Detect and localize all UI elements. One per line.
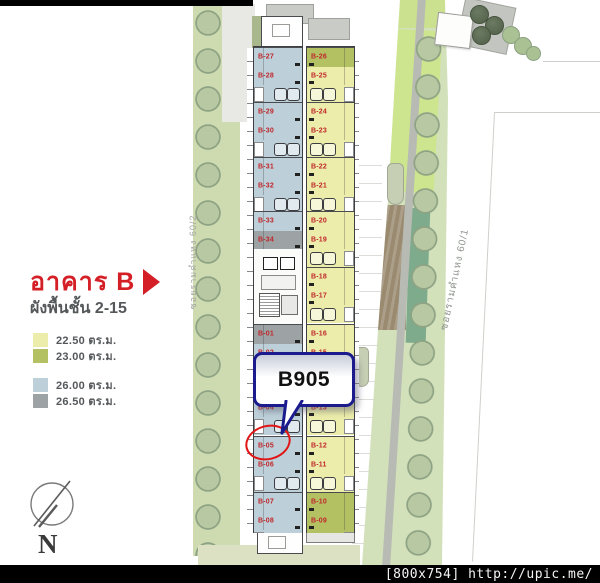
bath-core — [287, 477, 300, 490]
elevator-icon — [263, 257, 278, 270]
door-mark — [295, 227, 300, 230]
balcony-bath-strip — [307, 140, 354, 158]
terrace-furniture — [272, 24, 290, 37]
door-mark — [309, 173, 314, 176]
unit-B-20: B-20 — [307, 212, 354, 232]
door-mark — [309, 63, 314, 66]
door-mark — [295, 63, 300, 66]
unit-B-28: B-28 — [254, 67, 302, 87]
bath-core — [310, 252, 323, 265]
unit-label: B-09 — [311, 517, 327, 524]
unit-label: B-23 — [311, 127, 327, 134]
legend-swatch-yellow — [33, 333, 48, 347]
balcony-notch — [344, 142, 354, 157]
door-mark — [295, 452, 300, 455]
watermark-text: [800x754] http://upic.me/ — [385, 567, 600, 582]
legend-label: 26.50 ตร.ม. — [56, 392, 116, 410]
legend-swatch-olive — [33, 349, 48, 363]
bath-core — [287, 143, 300, 156]
balcony-notch — [344, 476, 354, 491]
bath-core — [274, 533, 287, 534]
letterbox-bottom: [800x754] http://upic.me/ — [0, 565, 600, 583]
balcony-bath-strip — [307, 305, 354, 323]
door-mark — [309, 118, 314, 121]
bath-core — [274, 88, 287, 101]
bath-core — [287, 88, 300, 101]
balcony-bath-strip — [254, 85, 302, 103]
unit-B-19: B-19 — [307, 231, 354, 251]
arrow-right-icon — [143, 269, 160, 295]
planter-island — [387, 163, 404, 205]
balcony-bath-strip — [307, 474, 354, 492]
unit-section: B-27B-28 — [254, 47, 302, 103]
unit-B-16: B-16 — [307, 325, 354, 345]
unit-label: B-20 — [311, 218, 327, 225]
balcony-notch — [254, 197, 264, 212]
door-mark — [295, 508, 300, 511]
tree-icon — [526, 46, 541, 61]
bath-core — [274, 477, 287, 490]
unit-label: B-26 — [311, 54, 327, 61]
unit-label: B-24 — [311, 109, 327, 116]
unit-B-23: B-23 — [307, 122, 354, 142]
bath-core — [274, 198, 287, 211]
unit-B-34: B-34 — [254, 231, 302, 250]
unit-label: B-32 — [258, 182, 274, 189]
stairs-icon — [259, 293, 280, 317]
unit-section: B-18B-17 — [307, 267, 354, 323]
unit-label: B-29 — [258, 109, 274, 116]
balcony-notch — [344, 197, 354, 212]
balcony-notch — [254, 87, 264, 102]
door-mark — [295, 191, 300, 194]
balcony-notch — [344, 251, 354, 266]
balcony-bath-strip — [254, 474, 302, 492]
balcony-bath-strip — [307, 249, 354, 267]
bath-core — [310, 477, 323, 490]
unit-label: B-25 — [311, 72, 327, 79]
legend-item: 26.50 ตร.ม. — [33, 392, 116, 410]
unit-label: B-30 — [258, 127, 274, 134]
unit-section: B-20B-19 — [307, 211, 354, 267]
unit-section: B-31B-32 — [254, 157, 302, 213]
unit-label: B-01 — [258, 331, 274, 338]
door-mark — [295, 173, 300, 176]
terrace-furniture — [268, 536, 286, 549]
bath-core — [310, 198, 323, 211]
balcony-notch — [344, 307, 354, 322]
terrace-top — [261, 16, 303, 48]
balcony-notch — [344, 87, 354, 102]
bath-core — [323, 308, 336, 321]
property-line — [495, 112, 600, 113]
unit-B-32: B-32 — [254, 177, 302, 197]
compass-n-label: N — [38, 529, 58, 559]
door-mark — [309, 340, 314, 343]
unit-B-17: B-17 — [307, 287, 354, 307]
legend-item: 23.00 ตร.ม. — [33, 347, 116, 365]
unit-B-01: B-01 — [254, 325, 302, 345]
unit-label: B-18 — [311, 274, 327, 281]
bath-core — [274, 143, 287, 156]
unit-section: B-10B-09 — [307, 492, 354, 533]
balcony-bath-strip — [307, 85, 354, 103]
balcony-bath-strip — [254, 530, 302, 533]
unit-label: B-21 — [311, 182, 327, 189]
unit-B-11: B-11 — [307, 456, 354, 476]
door-mark — [309, 283, 314, 286]
service-room — [281, 295, 298, 315]
door-mark — [295, 340, 300, 343]
unit-B-29: B-29 — [254, 103, 302, 123]
legend-swatch-gray — [33, 394, 48, 408]
door-mark — [295, 118, 300, 121]
bath-core — [323, 420, 336, 433]
callout-bubble: B905 — [253, 352, 355, 407]
bath-core — [323, 88, 336, 101]
unit-B-12: B-12 — [307, 437, 354, 457]
door-mark — [309, 81, 314, 84]
floor-range-subtitle: ผังพื้นชั้น 2-15 — [30, 296, 127, 321]
door-mark — [295, 526, 300, 529]
terrace-bottom — [257, 531, 303, 554]
unit-label: B-27 — [258, 54, 274, 61]
legend-swatch-blue — [33, 378, 48, 392]
unit-label: B-12 — [311, 443, 327, 450]
door-mark — [309, 508, 314, 511]
unit-label: B-22 — [311, 164, 327, 171]
road-label-left: ซอยรามคำแหง 60/2 — [186, 187, 200, 337]
unit-B-30: B-30 — [254, 122, 302, 142]
roof-block — [308, 18, 350, 40]
unit-label: B-17 — [311, 292, 327, 299]
unit-B-21: B-21 — [307, 177, 354, 197]
callout-tail — [272, 400, 312, 438]
door-mark — [309, 301, 314, 304]
balcony-notch — [254, 142, 264, 157]
unit-B-31: B-31 — [254, 158, 302, 178]
unit-label: B-08 — [258, 517, 274, 524]
door-mark — [309, 245, 314, 248]
elevator-icon — [280, 257, 295, 270]
bath-core — [310, 533, 323, 534]
letterbox-top — [0, 0, 253, 6]
compass-icon: N — [24, 477, 82, 559]
door-mark — [309, 526, 314, 529]
balcony-notch — [254, 532, 264, 533]
unit-label: B-16 — [311, 331, 327, 338]
unit-section: B-22B-21 — [307, 157, 354, 213]
building-wing-right: B-26B-25B-24B-23B-22B-21B-20B-19B-18B-17… — [306, 46, 355, 533]
unit-section: B-12B-11 — [307, 436, 354, 492]
unit-label: B-31 — [258, 164, 274, 171]
bath-core — [287, 533, 300, 534]
unit-B-24: B-24 — [307, 103, 354, 123]
tree-icon — [472, 26, 491, 45]
unit-section: B-29B-30 — [254, 102, 302, 158]
door-mark — [295, 470, 300, 473]
property-line — [543, 61, 600, 62]
unit-B-18: B-18 — [307, 268, 354, 288]
unit-label: B-33 — [258, 218, 274, 225]
unit-label: B-06 — [258, 461, 274, 468]
unit-label: B-34 — [258, 236, 274, 243]
bath-core — [323, 252, 336, 265]
unit-B-33: B-33 — [254, 212, 302, 232]
unit-B-07: B-07 — [254, 493, 302, 513]
floorplan-page: ซอยรามคำแหง 60/2 ซอยรามคำแหง 60/1 B-27B-… — [0, 0, 600, 583]
balcony-bath-strip — [254, 140, 302, 158]
property-line — [472, 112, 495, 562]
bath-core — [310, 88, 323, 101]
bath-core — [323, 198, 336, 211]
unit-label: B-28 — [258, 72, 274, 79]
balcony-notch — [344, 532, 354, 533]
unit-label: B-07 — [258, 499, 274, 506]
unit-section: B-07B-08 — [254, 492, 302, 533]
door-mark — [309, 470, 314, 473]
balcony-notch — [254, 476, 264, 491]
unit-B-26: B-26 — [307, 48, 354, 68]
unit-B-22: B-22 — [307, 158, 354, 178]
bath-core — [310, 308, 323, 321]
legend-label: 23.00 ตร.ม. — [56, 347, 116, 365]
bath-core — [323, 477, 336, 490]
lobby — [261, 275, 296, 290]
door-mark — [295, 245, 300, 248]
service-core — [253, 248, 303, 326]
bath-core — [310, 143, 323, 156]
door-mark — [309, 136, 314, 139]
unit-B-25: B-25 — [307, 67, 354, 87]
unit-section: B-26B-25 — [307, 47, 354, 103]
unit-B-09: B-09 — [307, 512, 354, 532]
bath-core — [323, 533, 336, 534]
door-mark — [309, 452, 314, 455]
bath-core — [287, 198, 300, 211]
balcony-bath-strip — [307, 417, 354, 435]
unit-label: B-19 — [311, 236, 327, 243]
pavilion — [434, 12, 474, 49]
unit-section: B-24B-23 — [307, 102, 354, 158]
door-mark — [309, 191, 314, 194]
door-mark — [309, 227, 314, 230]
entry-landscape — [430, 0, 600, 130]
balcony-bath-strip — [307, 530, 354, 533]
balcony-notch — [344, 419, 354, 434]
unit-B-27: B-27 — [254, 48, 302, 68]
unit-label: B-11 — [311, 461, 327, 468]
door-mark — [295, 81, 300, 84]
unit-label: B-10 — [311, 499, 327, 506]
bath-core — [323, 143, 336, 156]
unit-section: B-33B-34 — [254, 211, 302, 249]
door-mark — [295, 136, 300, 139]
callout-label: B905 — [278, 368, 330, 392]
unit-B-08: B-08 — [254, 512, 302, 532]
unit-B-10: B-10 — [307, 493, 354, 513]
